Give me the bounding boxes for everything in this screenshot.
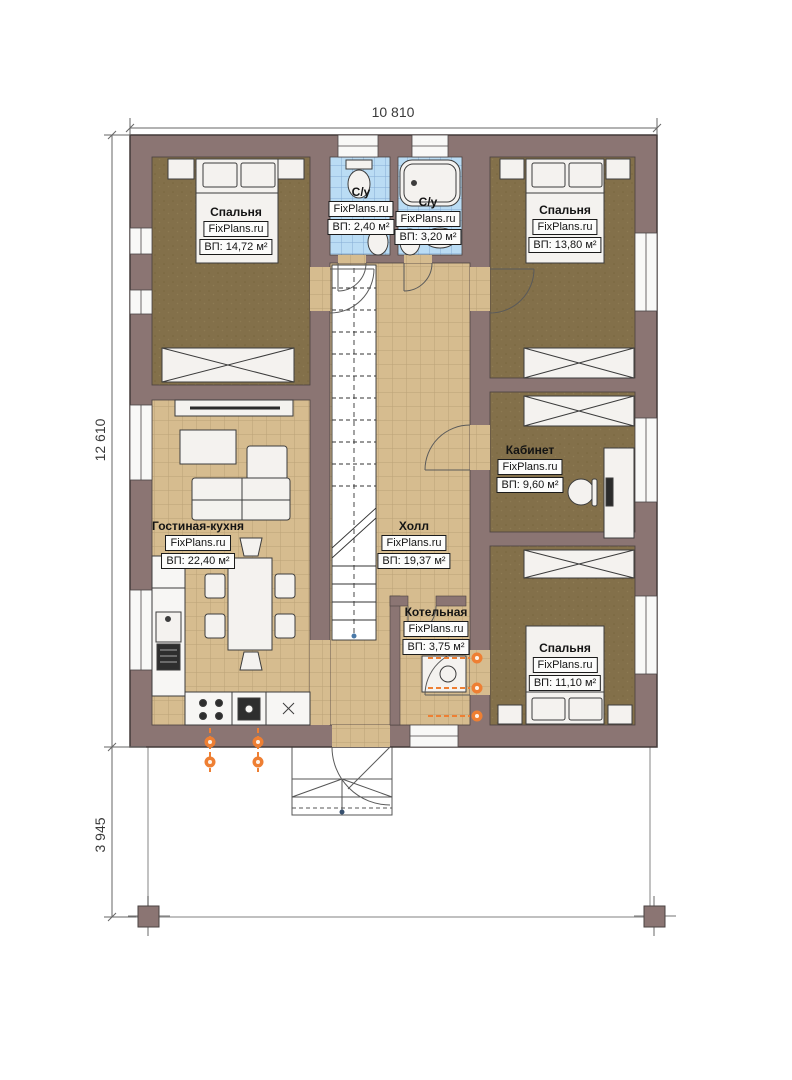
room-name: Гостиная-кухня	[152, 520, 244, 533]
wardrobe-top-left	[162, 348, 294, 382]
watermark-box: FixPlans.ru	[165, 535, 230, 551]
room-name: Спальня	[529, 642, 601, 655]
coffee-table	[180, 430, 236, 464]
room-area: ВП: 19,37 м²	[377, 553, 450, 569]
watermark-box: FixPlans.ru	[328, 201, 393, 217]
tv-stand	[175, 400, 293, 416]
wardrobe-office	[524, 396, 634, 426]
room-name: С/у	[394, 196, 461, 209]
room-name: Кабинет	[496, 444, 563, 457]
room-label-bedroom-top-right: Спальня FixPlans.ru ВП: 13,80 м²	[528, 204, 601, 253]
room-area: ВП: 9,60 м²	[496, 477, 563, 493]
room-area: ВП: 11,10 м²	[529, 675, 601, 691]
entry-porch-steps	[292, 747, 392, 815]
watermark-box: FixPlans.ru	[532, 219, 597, 235]
room-name: С/у	[327, 186, 394, 199]
wardrobe-bottom-right	[524, 550, 634, 578]
room-area: ВП: 22,40 м²	[161, 553, 234, 569]
watermark-box: FixPlans.ru	[395, 211, 460, 227]
room-area: ВП: 14,72 м²	[199, 239, 272, 255]
room-name: Холл	[377, 520, 450, 533]
boiler-unit	[422, 656, 466, 692]
room-label-office: Кабинет FixPlans.ru ВП: 9,60 м²	[496, 444, 563, 493]
dimension-height-main: 12 610	[92, 419, 108, 462]
room-area: ВП: 2,40 м²	[327, 219, 394, 235]
watermark-box: FixPlans.ru	[532, 657, 597, 673]
watermark-box: FixPlans.ru	[381, 535, 446, 551]
room-name: Спальня	[199, 206, 272, 219]
room-label-living-kitchen: Гостиная-кухня FixPlans.ru ВП: 22,40 м²	[152, 520, 244, 569]
room-label-bedroom-top-left: Спальня FixPlans.ru ВП: 14,72 м²	[199, 206, 272, 255]
room-area: ВП: 13,80 м²	[528, 237, 601, 253]
room-label-boiler-room: Котельная FixPlans.ru ВП: 3,75 м²	[402, 606, 469, 655]
room-area: ВП: 3,75 м²	[402, 639, 469, 655]
wardrobe-top-right	[524, 348, 634, 378]
watermark-box: FixPlans.ru	[403, 621, 468, 637]
dimension-height-terrace: 3 945	[92, 817, 108, 852]
room-area: ВП: 3,20 м²	[394, 229, 461, 245]
room-label-hall: Холл FixPlans.ru ВП: 19,37 м²	[377, 520, 450, 569]
terrace-columns	[128, 896, 676, 936]
room-name: Котельная	[402, 606, 469, 619]
room-label-bathroom-small: С/у FixPlans.ru ВП: 2,40 м²	[327, 186, 394, 235]
staircase	[332, 265, 376, 640]
room-label-bedroom-bottom-right: Спальня FixPlans.ru ВП: 11,10 м²	[529, 642, 601, 691]
room-label-bathroom-large: С/у FixPlans.ru ВП: 3,20 м²	[394, 196, 461, 245]
watermark-box: FixPlans.ru	[497, 459, 562, 475]
watermark-box: FixPlans.ru	[203, 221, 268, 237]
floor-plan-page: 10 810 12 610 3 945 Спальня FixPlans.ru …	[0, 0, 792, 1080]
dimension-width-total: 10 810	[372, 104, 415, 120]
room-name: Спальня	[528, 204, 601, 217]
terrace-outline	[136, 747, 662, 917]
